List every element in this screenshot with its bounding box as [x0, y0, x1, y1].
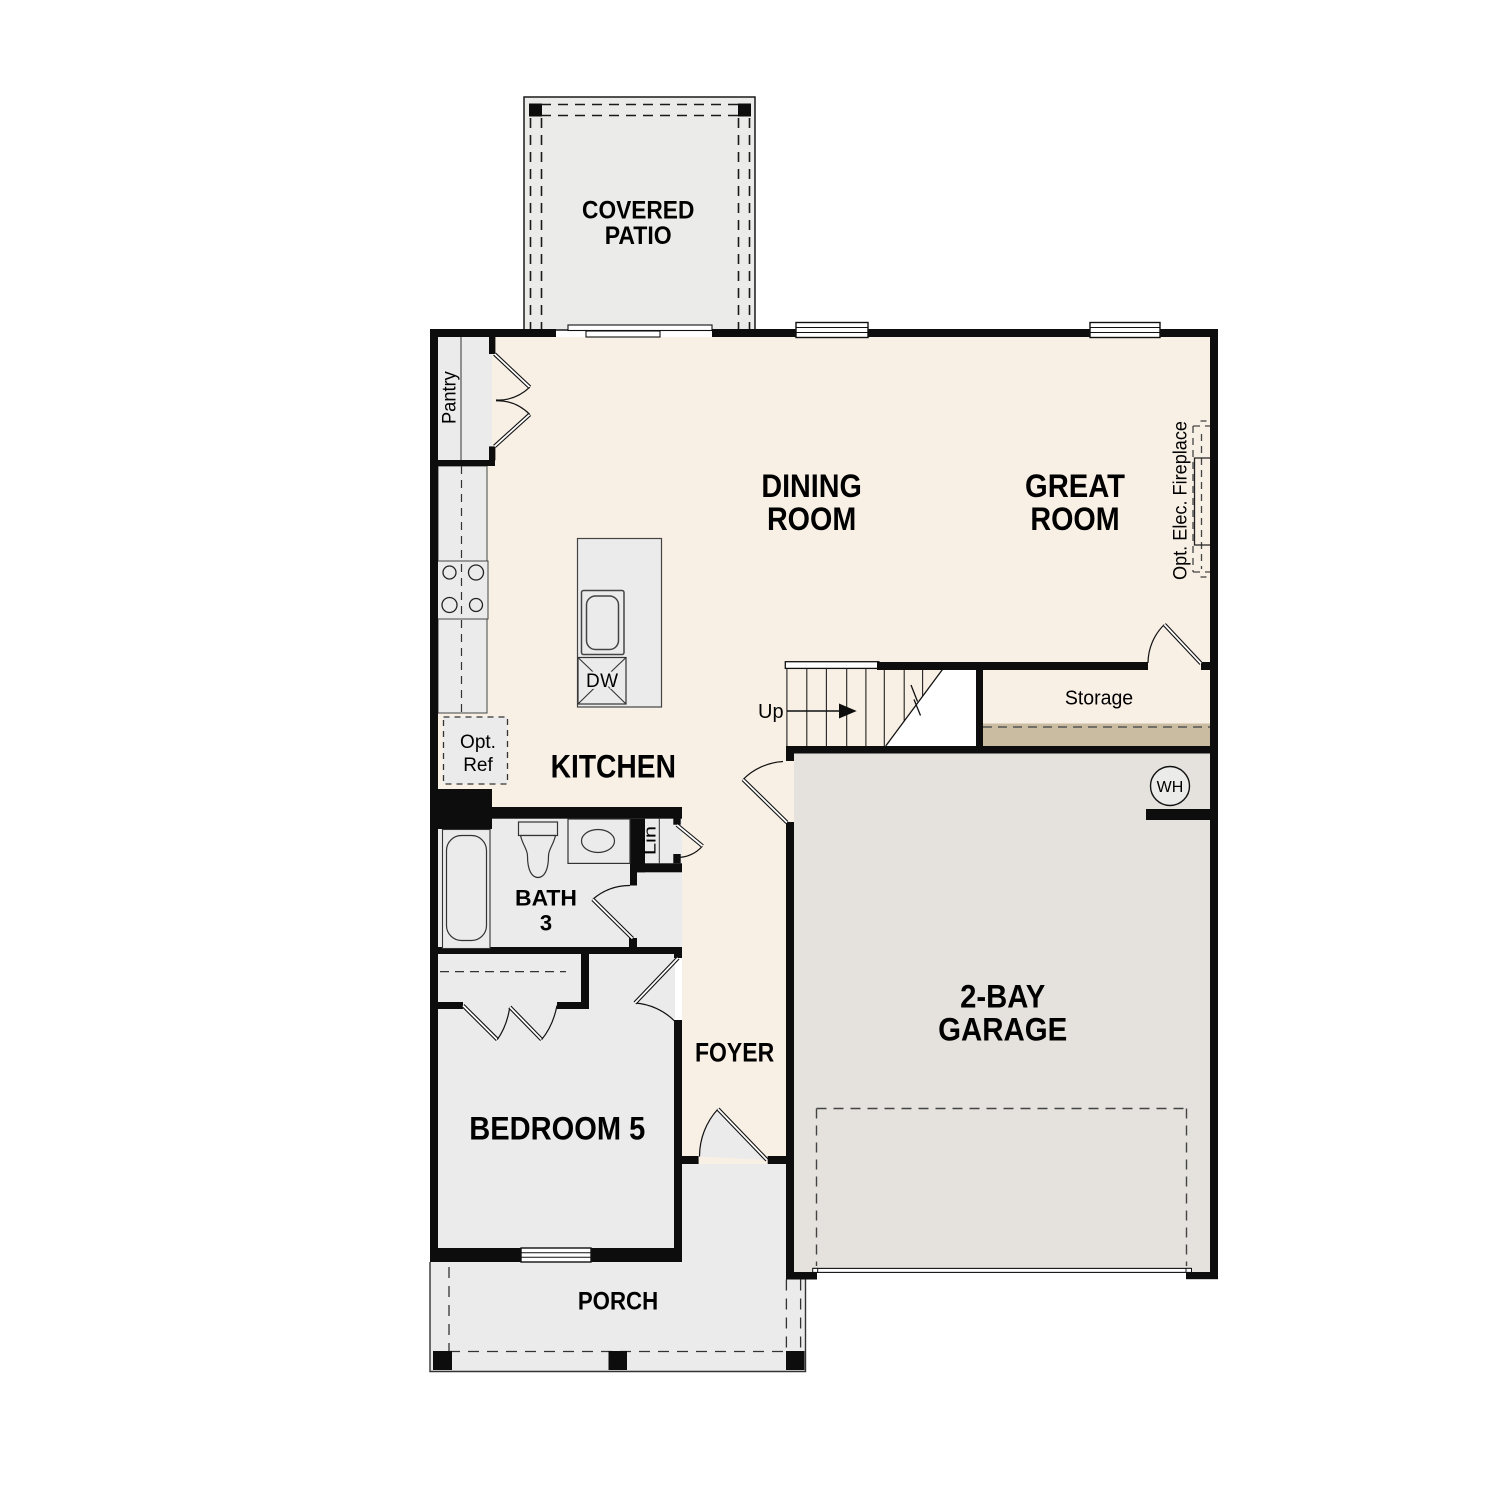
- svg-text:Lin: Lin: [641, 826, 660, 855]
- svg-text:BATH: BATH: [515, 885, 577, 910]
- svg-text:Opt.: Opt.: [460, 732, 496, 753]
- svg-text:Up: Up: [758, 701, 784, 723]
- svg-text:Pantry: Pantry: [439, 371, 461, 424]
- svg-text:GARAGE: GARAGE: [938, 1012, 1067, 1048]
- svg-text:3: 3: [540, 911, 552, 936]
- svg-text:Storage: Storage: [1065, 688, 1133, 710]
- svg-text:KITCHEN: KITCHEN: [551, 748, 676, 784]
- svg-text:FOYER: FOYER: [695, 1037, 774, 1067]
- svg-text:BEDROOM 5: BEDROOM 5: [469, 1111, 645, 1147]
- svg-text:PATIO: PATIO: [605, 222, 672, 250]
- svg-text:2-BAY: 2-BAY: [960, 979, 1045, 1015]
- svg-text:Opt. Elec. Fireplace: Opt. Elec. Fireplace: [1171, 421, 1192, 580]
- svg-text:COVERED: COVERED: [582, 196, 694, 224]
- svg-text:DW: DW: [586, 671, 618, 692]
- svg-text:Ref: Ref: [463, 755, 493, 776]
- svg-text:DINING: DINING: [761, 468, 862, 504]
- svg-text:GREAT: GREAT: [1025, 468, 1125, 504]
- svg-text:ROOM: ROOM: [767, 501, 856, 537]
- svg-text:WH: WH: [1157, 779, 1184, 796]
- svg-text:ROOM: ROOM: [1030, 501, 1119, 537]
- svg-text:PORCH: PORCH: [578, 1288, 658, 1316]
